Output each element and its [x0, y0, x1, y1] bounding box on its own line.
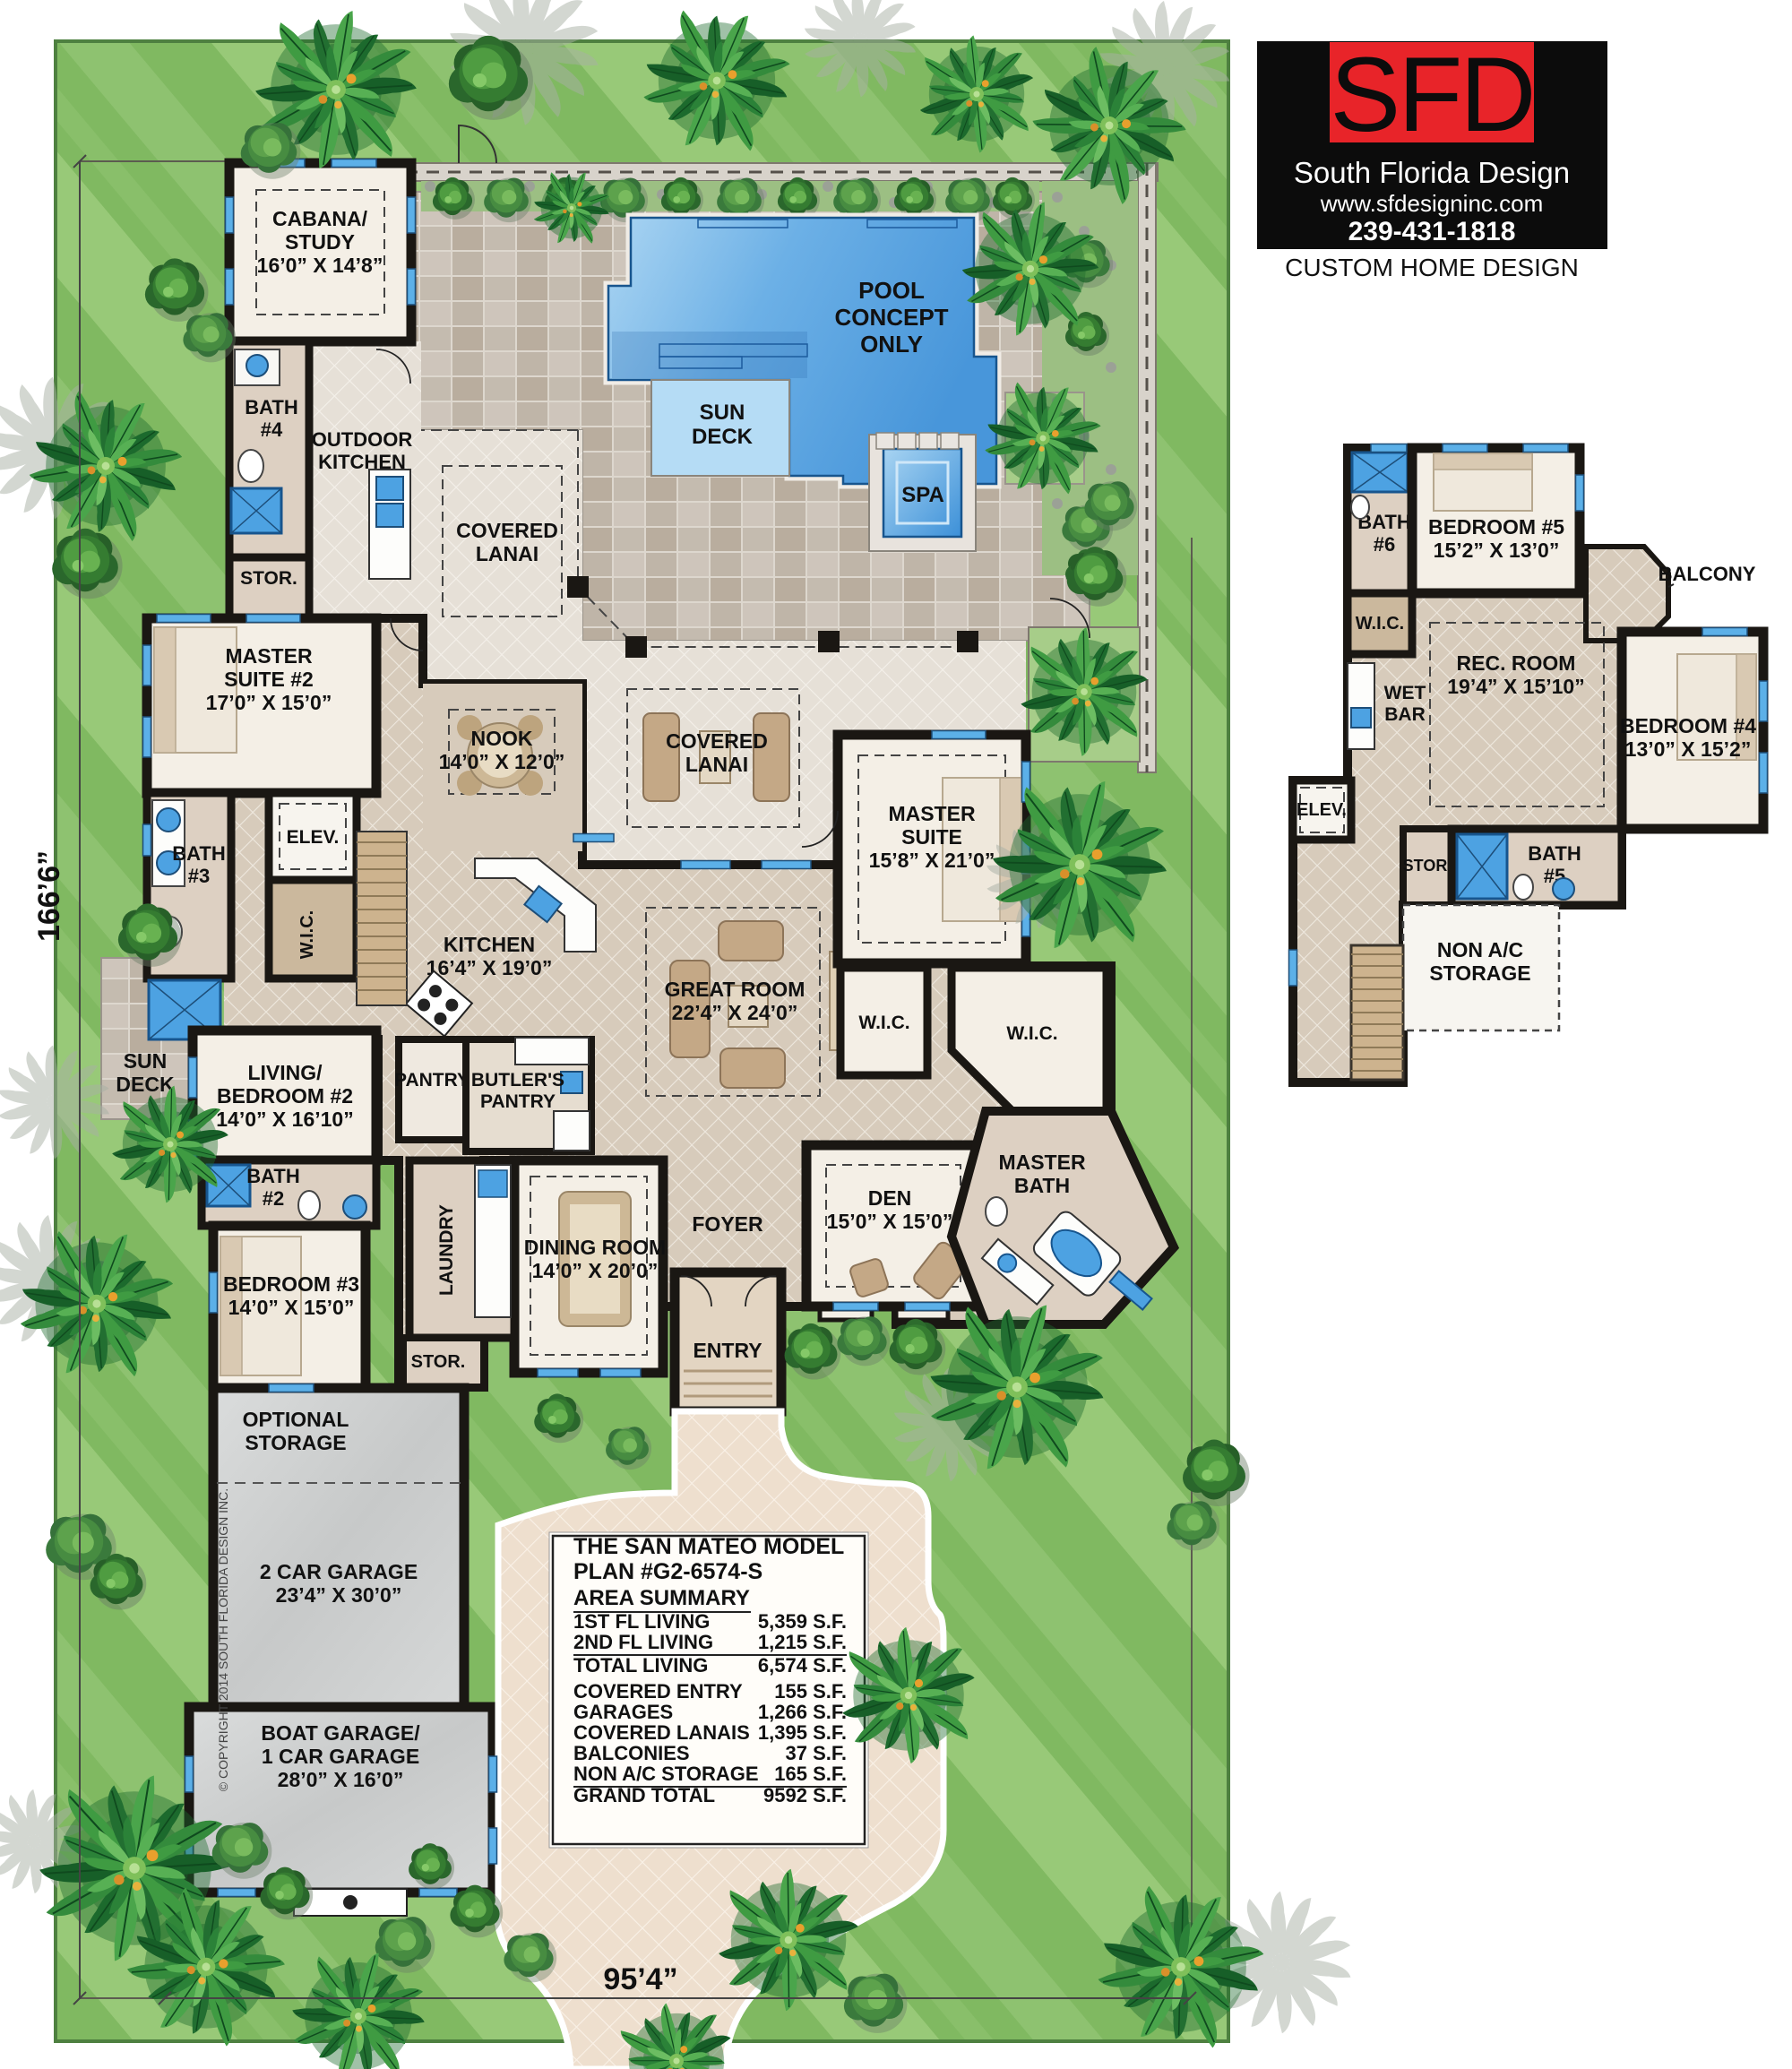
svg-text:1ST FL LIVING: 1ST FL LIVING	[573, 1610, 710, 1633]
svg-text:COVERED ENTRY: COVERED ENTRY	[573, 1680, 743, 1703]
svg-text:OUTDOOR: OUTDOOR	[312, 428, 413, 451]
svg-text:W.I.C.: W.I.C.	[297, 910, 317, 959]
svg-text:13’0” X 15’2”: 13’0” X 15’2”	[1625, 737, 1752, 761]
svg-text:14’0” X 20’0”: 14’0” X 20’0”	[532, 1259, 659, 1282]
svg-text:www.sfdesigninc.com: www.sfdesigninc.com	[1320, 190, 1544, 217]
svg-text:STOR.: STOR.	[240, 568, 297, 589]
svg-text:DEN: DEN	[868, 1186, 912, 1210]
svg-text:DINING ROOM: DINING ROOM	[524, 1236, 666, 1259]
svg-text:BUTLER'S: BUTLER'S	[471, 1070, 564, 1091]
svg-text:DECK: DECK	[692, 425, 754, 449]
svg-text:14’0” X 12’0”: 14’0” X 12’0”	[439, 750, 565, 773]
svg-text:1,215 S.F.: 1,215 S.F.	[758, 1631, 847, 1653]
svg-text:STORAGE: STORAGE	[245, 1431, 346, 1454]
svg-text:BATH: BATH	[1014, 1174, 1070, 1197]
svg-text:BATH: BATH	[1528, 842, 1581, 865]
svg-text:14’0” X 15’0”: 14’0” X 15’0”	[228, 1296, 355, 1319]
svg-text:6,574 S.F.: 6,574 S.F.	[758, 1654, 847, 1677]
svg-text:SUITE #2: SUITE #2	[224, 668, 314, 691]
svg-text:LANAI: LANAI	[685, 753, 748, 776]
svg-text:BATH: BATH	[245, 396, 297, 418]
svg-text:W.I.C.: W.I.C.	[858, 1013, 909, 1033]
svg-text:SPA: SPA	[901, 483, 944, 507]
svg-text:GREAT ROOM: GREAT ROOM	[665, 978, 806, 1001]
svg-text:16’0” X 14’8”: 16’0” X 14’8”	[257, 254, 383, 277]
svg-text:NON A/C STORAGE: NON A/C STORAGE	[573, 1763, 759, 1785]
svg-text:REC. ROOM: REC. ROOM	[1457, 651, 1576, 675]
svg-text:STUDY: STUDY	[285, 230, 355, 254]
svg-text:PLAN #G2-6574-S: PLAN #G2-6574-S	[573, 1559, 762, 1584]
svg-text:19’4” X 15’10”: 19’4” X 15’10”	[1447, 675, 1584, 698]
svg-text:DECK: DECK	[116, 1073, 175, 1096]
svg-text:165 S.F.: 165 S.F.	[774, 1763, 847, 1785]
svg-text:28’0” X 16’0”: 28’0” X 16’0”	[278, 1768, 404, 1791]
svg-text:#6: #6	[1374, 533, 1395, 556]
svg-text:5,359 S.F.: 5,359 S.F.	[758, 1610, 847, 1633]
svg-text:LANAI: LANAI	[476, 542, 538, 565]
svg-text:ELEV.: ELEV.	[1297, 800, 1347, 820]
svg-text:BATH: BATH	[172, 842, 225, 865]
svg-text:155 S.F.: 155 S.F.	[774, 1680, 847, 1703]
svg-text:37 S.F.: 37 S.F.	[786, 1742, 847, 1764]
svg-text:STOR.: STOR.	[411, 1352, 466, 1372]
svg-text:COVERED: COVERED	[666, 729, 768, 753]
svg-text:1,395 S.F.: 1,395 S.F.	[758, 1721, 847, 1744]
svg-text:SUITE: SUITE	[901, 825, 962, 849]
svg-text:BEDROOM #2: BEDROOM #2	[217, 1084, 353, 1108]
svg-text:ONLY: ONLY	[860, 331, 923, 358]
svg-text:CONCEPT: CONCEPT	[834, 304, 948, 331]
svg-text:FOYER: FOYER	[692, 1212, 763, 1236]
svg-text:SUN: SUN	[124, 1049, 168, 1073]
svg-text:BATH: BATH	[246, 1165, 299, 1187]
svg-text:CABANA/: CABANA/	[272, 207, 368, 230]
svg-text:MASTER: MASTER	[888, 802, 976, 825]
svg-text:TOTAL LIVING: TOTAL LIVING	[573, 1654, 708, 1677]
svg-text:LAUNDRY: LAUNDRY	[436, 1204, 457, 1296]
svg-text:16’4” X 19’0”: 16’4” X 19’0”	[426, 956, 553, 979]
svg-text:AREA SUMMARY: AREA SUMMARY	[573, 1586, 750, 1610]
svg-text:GARAGES: GARAGES	[573, 1701, 673, 1723]
svg-text:BEDROOM #4: BEDROOM #4	[1620, 714, 1756, 737]
svg-text:SFD: SFD	[1331, 36, 1534, 154]
svg-text:W.I.C.: W.I.C.	[1356, 614, 1404, 634]
svg-text:BEDROOM #5: BEDROOM #5	[1428, 515, 1564, 539]
svg-text:95’4”: 95’4”	[603, 1962, 677, 1996]
svg-text:ENTRY: ENTRY	[693, 1339, 762, 1362]
svg-text:1 CAR GARAGE: 1 CAR GARAGE	[262, 1745, 419, 1768]
svg-text:LIVING/: LIVING/	[247, 1061, 323, 1084]
svg-text:W.I.C.: W.I.C.	[1006, 1023, 1057, 1044]
svg-text:NON A/C: NON A/C	[1437, 938, 1523, 961]
svg-text:STORAGE: STORAGE	[1429, 961, 1530, 985]
svg-text:BALCONY: BALCONY	[1658, 563, 1756, 585]
svg-text:BALCONIES: BALCONIES	[573, 1742, 690, 1764]
svg-text:SUN: SUN	[700, 401, 745, 425]
svg-text:BAR: BAR	[1384, 704, 1426, 725]
svg-text:© COPYRIGHT 2014 SOUTH FLORIDA: © COPYRIGHT 2014 SOUTH FLORIDA DESIGN IN…	[216, 1488, 230, 1791]
svg-text:22’4” X 24’0”: 22’4” X 24’0”	[672, 1001, 798, 1024]
svg-text:PANTRY: PANTRY	[394, 1070, 470, 1091]
svg-text:2ND FL LIVING: 2ND FL LIVING	[573, 1631, 713, 1653]
svg-text:2 CAR GARAGE: 2 CAR GARAGE	[260, 1560, 418, 1583]
svg-text:#3: #3	[188, 865, 210, 887]
svg-text:ELEV.: ELEV.	[287, 827, 340, 848]
svg-text:South Florida Design: South Florida Design	[1294, 156, 1570, 189]
svg-text:BEDROOM #3: BEDROOM #3	[223, 1272, 359, 1296]
svg-text:WET: WET	[1384, 683, 1426, 703]
svg-text:#2: #2	[263, 1187, 284, 1210]
svg-text:#4: #4	[261, 418, 283, 441]
svg-text:PANTRY: PANTRY	[480, 1091, 556, 1112]
svg-text:THE SAN MATEO MODEL: THE SAN MATEO MODEL	[573, 1534, 844, 1559]
svg-text:MASTER: MASTER	[998, 1151, 1086, 1174]
svg-text:MASTER: MASTER	[225, 644, 313, 668]
svg-text:15’8” X 21’0”: 15’8” X 21’0”	[869, 849, 995, 872]
svg-text:1,266 S.F.: 1,266 S.F.	[758, 1701, 847, 1723]
svg-text:STOR.: STOR.	[1403, 857, 1452, 875]
svg-text:CUSTOM HOME DESIGN: CUSTOM HOME DESIGN	[1285, 254, 1579, 281]
svg-text:NOOK: NOOK	[471, 727, 533, 750]
svg-text:15’2” X 13’0”: 15’2” X 13’0”	[1434, 539, 1560, 562]
svg-text:KITCHEN: KITCHEN	[444, 933, 535, 956]
svg-text:239-431-1818: 239-431-1818	[1348, 217, 1516, 246]
svg-text:COVERED: COVERED	[456, 519, 558, 542]
svg-text:OPTIONAL: OPTIONAL	[243, 1408, 349, 1431]
svg-text:KITCHEN: KITCHEN	[318, 451, 406, 473]
svg-text:POOL: POOL	[858, 277, 925, 304]
svg-text:15’0” X 15’0”: 15’0” X 15’0”	[827, 1210, 953, 1233]
svg-text:BOAT GARAGE/: BOAT GARAGE/	[261, 1721, 420, 1745]
svg-text:17’0” X 15’0”: 17’0” X 15’0”	[206, 691, 332, 714]
svg-text:23’4” X 30’0”: 23’4” X 30’0”	[276, 1583, 402, 1607]
svg-text:14’0” X 16’10”: 14’0” X 16’10”	[216, 1108, 353, 1131]
svg-text:COVERED LANAIS: COVERED LANAIS	[573, 1721, 750, 1744]
svg-text:166’6”: 166’6”	[32, 850, 66, 942]
